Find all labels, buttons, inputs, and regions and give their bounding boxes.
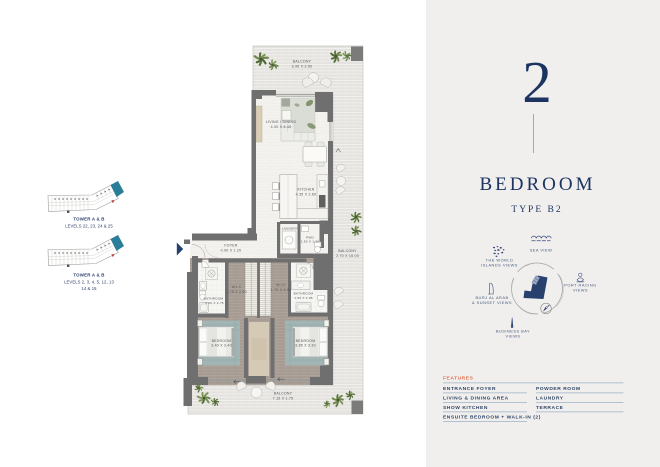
svg-text:BATHROOM: BATHROOM: [204, 297, 224, 301]
svg-text:0.00 X 1.20: 0.00 X 1.20: [221, 249, 242, 253]
svg-text:LIVING / DINING: LIVING / DINING: [266, 120, 296, 124]
svg-text:TOWER A & B: TOWER A & B: [73, 217, 104, 222]
svg-text:W.I.C: W.I.C: [276, 283, 286, 287]
svg-text:FOYER: FOYER: [224, 244, 238, 248]
svg-text:BALCONY: BALCONY: [338, 249, 357, 253]
svg-text:BEDROOM: BEDROOM: [212, 339, 232, 343]
svg-text:KITCHEN: KITCHEN: [297, 188, 314, 192]
svg-text:4.00 X 6.40: 4.00 X 6.40: [271, 125, 292, 129]
svg-text:3.95 X 2.50: 3.95 X 2.50: [292, 65, 313, 69]
svg-text:LAUNDRY: LAUNDRY: [282, 227, 298, 231]
svg-text:BALCONY: BALCONY: [274, 392, 293, 396]
svg-text:1.75 X 2.90: 1.75 X 2.90: [226, 290, 247, 294]
svg-text:W.I.C: W.I.C: [232, 285, 242, 289]
svg-text:TOWER A & B: TOWER A & B: [73, 273, 104, 278]
svg-text:BEDROOM: BEDROOM: [296, 339, 316, 343]
svg-text:2.00 X 2.75: 2.00 X 2.75: [205, 301, 224, 305]
svg-text:2.70 X 16.00: 2.70 X 16.00: [336, 254, 359, 258]
svg-text:7.15 X 1.75: 7.15 X 1.75: [273, 397, 294, 401]
svg-text:3.85 X 3.30: 3.85 X 3.30: [295, 344, 316, 348]
svg-text:1.95 X 2.95: 1.95 X 2.95: [294, 296, 313, 300]
svg-text:1.50 X 1.50: 1.50 X 1.50: [301, 240, 320, 244]
svg-text:LEVELS 22, 23, 24 & 25: LEVELS 22, 23, 24 & 25: [65, 224, 113, 229]
svg-text:4.35 X 2.60: 4.35 X 2.60: [296, 193, 317, 197]
svg-text:LEVELS 2, 3, 4, 5, 12, 13: LEVELS 2, 3, 4, 5, 12, 13: [64, 280, 114, 285]
svg-text:1.70 X 3.95: 1.70 X 3.95: [271, 288, 292, 292]
svg-text:14 & 15: 14 & 15: [81, 286, 97, 291]
svg-text:BATHROOM: BATHROOM: [294, 292, 314, 296]
svg-text:3.40 X 3.40: 3.40 X 3.40: [211, 344, 232, 348]
svg-text:BALCONY: BALCONY: [293, 60, 312, 64]
